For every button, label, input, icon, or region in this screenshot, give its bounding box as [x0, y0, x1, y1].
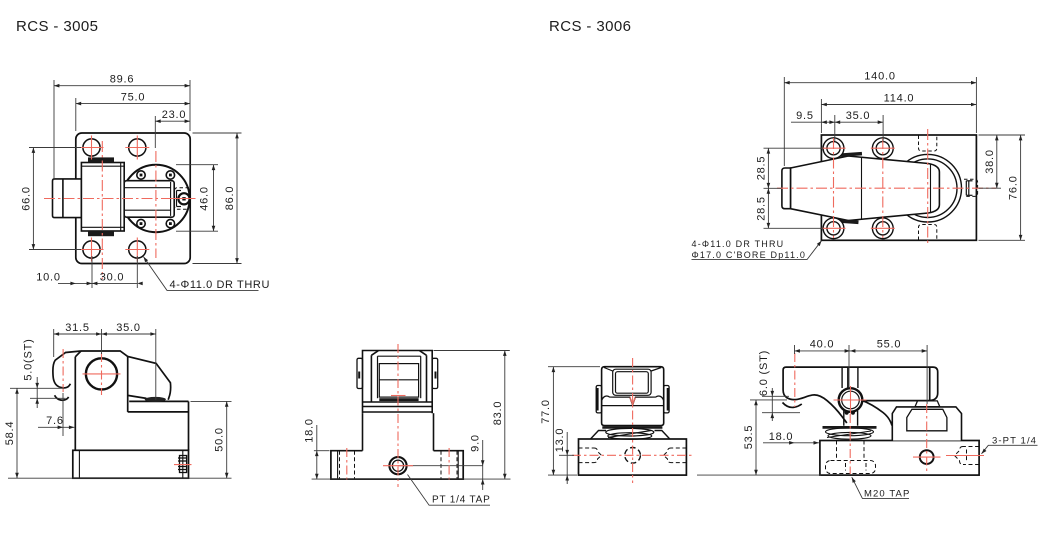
svg-text:35.0: 35.0 — [116, 322, 141, 334]
svg-text:RCS - 3005: RCS - 3005 — [16, 18, 98, 35]
svg-text:76.0: 76.0 — [1008, 175, 1020, 200]
svg-text:83.0: 83.0 — [492, 401, 504, 426]
svg-text:RCS - 3006: RCS - 3006 — [549, 18, 631, 35]
svg-text:13.0: 13.0 — [554, 428, 566, 453]
svg-text:53.5: 53.5 — [743, 425, 755, 450]
svg-text:86.0: 86.0 — [224, 186, 236, 211]
svg-text:9.5: 9.5 — [796, 110, 814, 122]
svg-text:31.5: 31.5 — [65, 322, 90, 334]
svg-text:9.0: 9.0 — [470, 434, 482, 452]
svg-text:55.0: 55.0 — [877, 339, 902, 351]
svg-text:114.0: 114.0 — [884, 92, 915, 104]
svg-text:10.0: 10.0 — [36, 272, 61, 284]
svg-text:140.0: 140.0 — [864, 71, 896, 83]
svg-text:18.0: 18.0 — [304, 418, 316, 443]
svg-text:6.0 (ST): 6.0 (ST) — [758, 350, 770, 396]
svg-text:89.6: 89.6 — [110, 74, 135, 86]
svg-text:30.0: 30.0 — [100, 272, 125, 284]
svg-text:75.0: 75.0 — [121, 91, 146, 103]
svg-text:35.0: 35.0 — [846, 110, 871, 122]
svg-text:40.0: 40.0 — [810, 339, 835, 351]
svg-text:18.0: 18.0 — [769, 431, 794, 443]
svg-text:28.5: 28.5 — [756, 196, 768, 221]
svg-text:58.4: 58.4 — [4, 421, 16, 446]
svg-text:77.0: 77.0 — [540, 399, 552, 424]
svg-text:5.0(ST): 5.0(ST) — [23, 338, 35, 380]
svg-text:38.0: 38.0 — [984, 149, 996, 174]
svg-text:3-PT 1/4: 3-PT 1/4 — [992, 436, 1037, 447]
svg-text:PT 1/4 TAP: PT 1/4 TAP — [432, 495, 491, 506]
svg-text:4-Φ11.0 DR THRU: 4-Φ11.0 DR THRU — [170, 279, 271, 291]
svg-text:50.0: 50.0 — [214, 427, 226, 452]
svg-text:28.5: 28.5 — [756, 156, 768, 181]
svg-text:7.6: 7.6 — [46, 415, 64, 427]
svg-text:4-Φ11.0 DR THRU: 4-Φ11.0 DR THRU — [692, 239, 785, 249]
svg-text:M20 TAP: M20 TAP — [864, 488, 910, 499]
svg-text:46.0: 46.0 — [199, 186, 211, 211]
svg-text:23.0: 23.0 — [162, 109, 187, 121]
svg-text:66.0: 66.0 — [21, 186, 33, 211]
svg-text:Φ17.0 C'BORE Dp11.0: Φ17.0 C'BORE Dp11.0 — [692, 250, 807, 260]
